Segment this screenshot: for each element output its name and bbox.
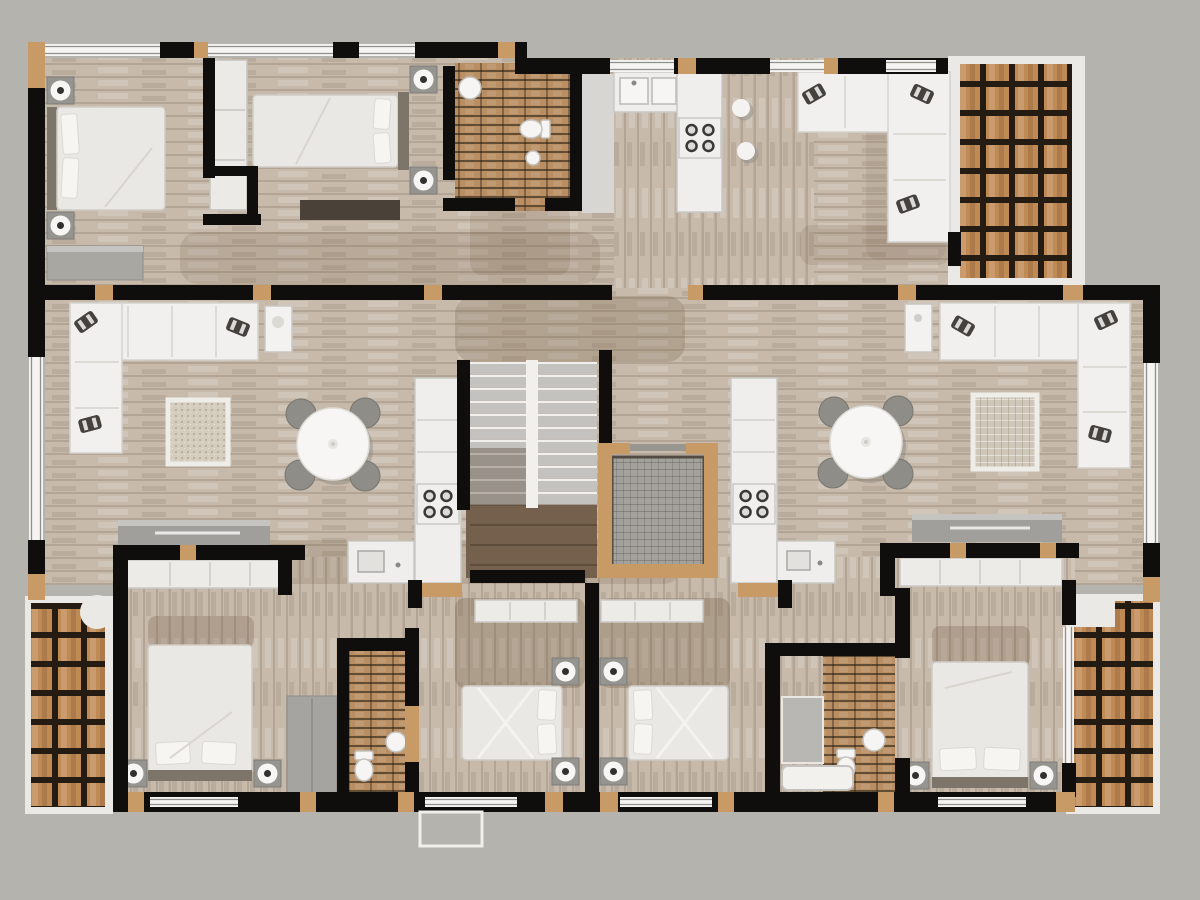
- wood-post: [300, 792, 316, 812]
- floor-shading: [148, 616, 254, 648]
- nightstand-lamp: [47, 212, 74, 239]
- wood-post: [718, 792, 734, 812]
- wall: [1143, 543, 1160, 577]
- shower: [782, 697, 823, 763]
- console-table: [905, 304, 932, 352]
- wall: [457, 360, 470, 510]
- wall: [113, 545, 305, 560]
- wardrobe: [601, 600, 703, 622]
- faucet: [632, 81, 637, 86]
- cooktop: [417, 484, 459, 524]
- faucet: [818, 561, 823, 566]
- bathroom-floor: [342, 650, 408, 792]
- elevator-cab: [612, 457, 704, 567]
- window: [1144, 363, 1158, 543]
- wall: [443, 66, 455, 180]
- bed-pillow: [633, 690, 653, 721]
- window: [886, 60, 936, 72]
- wall: [203, 58, 215, 178]
- door-threshold: [422, 583, 462, 597]
- wardrobe: [123, 560, 286, 588]
- elevator-door: [630, 444, 686, 451]
- washbasin: [863, 729, 885, 751]
- wall: [28, 88, 45, 357]
- wood-post: [180, 545, 196, 560]
- wood-post: [600, 792, 618, 812]
- dresser-top: [47, 246, 143, 252]
- wall: [443, 198, 515, 211]
- nightstand-lamp: [254, 760, 281, 787]
- stair-landing: [466, 500, 597, 578]
- wall: [408, 580, 422, 608]
- wall: [765, 643, 780, 795]
- nightstand-lamp: [552, 658, 579, 685]
- wood-post: [128, 792, 144, 812]
- nightstand-lamp: [47, 77, 74, 104]
- wall: [45, 285, 612, 300]
- bed-pillow: [61, 113, 80, 154]
- wood-post: [950, 543, 966, 558]
- desk: [300, 200, 400, 220]
- window: [359, 44, 415, 56]
- floor-shading: [932, 626, 1030, 666]
- wall: [113, 545, 128, 803]
- window: [425, 797, 517, 807]
- nightstand-lamp: [600, 658, 627, 685]
- wall: [570, 58, 582, 211]
- nightstand-lamp: [410, 66, 437, 93]
- rug: [168, 400, 228, 464]
- dining-set: [285, 398, 380, 491]
- wall: [948, 232, 961, 266]
- wood-post: [678, 58, 696, 74]
- wall: [880, 543, 895, 596]
- wood-post: [898, 285, 916, 300]
- staircase-shadow: [470, 448, 526, 506]
- kitchen-sink: [787, 551, 810, 570]
- kitchen-counter: [731, 378, 777, 583]
- entry-corridor-floor: [582, 74, 614, 213]
- wall: [515, 58, 610, 74]
- rug: [973, 395, 1037, 469]
- bed-headboard: [47, 107, 57, 210]
- elevator-frame: [598, 443, 612, 578]
- nightstand-lamp: [600, 758, 627, 785]
- dining-set: [818, 396, 913, 489]
- window: [610, 60, 674, 72]
- window: [208, 44, 333, 56]
- wall: [778, 580, 792, 608]
- wood-post: [1063, 285, 1083, 300]
- elevator-frame: [686, 443, 718, 454]
- window: [620, 797, 712, 807]
- bed-headboard: [932, 777, 1028, 788]
- window: [150, 797, 238, 807]
- kitchen-sink: [358, 551, 384, 572]
- wall: [333, 42, 359, 58]
- door-threshold: [738, 583, 778, 597]
- wall: [1062, 580, 1076, 625]
- tv-sideboard-top: [912, 514, 1062, 520]
- bar-stool: [732, 99, 750, 117]
- cooktop: [733, 484, 775, 524]
- wood-post: [688, 285, 703, 300]
- cooktop: [679, 118, 721, 158]
- balcony-trellis-notch: [1073, 601, 1115, 627]
- window: [45, 44, 160, 56]
- window: [29, 357, 43, 540]
- balcony-corner-column: [80, 595, 114, 629]
- wall: [278, 545, 292, 595]
- nightstand-lamp: [552, 758, 579, 785]
- bed-pillow: [939, 747, 976, 771]
- balcony-trellis: [1073, 601, 1153, 807]
- wall: [113, 792, 1075, 812]
- bed-pillow: [155, 741, 190, 765]
- wall: [203, 214, 261, 225]
- wall: [936, 58, 948, 74]
- bed-pillow: [983, 747, 1020, 771]
- nightstand-lamp: [410, 167, 437, 194]
- window: [938, 797, 1026, 807]
- toilet: [355, 751, 373, 781]
- elevator-frame: [598, 443, 630, 454]
- wall: [585, 583, 599, 795]
- bed-pillow: [537, 724, 557, 755]
- floor-shading: [470, 205, 570, 275]
- bed-pillow: [373, 132, 391, 163]
- kitchen-drawer: [652, 78, 676, 104]
- wood-post: [545, 792, 563, 812]
- bed-pillow: [537, 690, 557, 721]
- bed-pillow: [61, 158, 79, 199]
- wood-post: [878, 792, 894, 812]
- wall: [895, 588, 910, 658]
- washbasin: [386, 732, 406, 752]
- console-detail: [914, 314, 922, 322]
- wood-post: [194, 42, 208, 58]
- bed-headboard: [398, 92, 409, 170]
- window: [1063, 627, 1074, 763]
- bed-pillow: [201, 741, 236, 765]
- washbasin: [459, 77, 481, 99]
- nightstand-lamp: [1030, 762, 1057, 789]
- tv-sideboard-top: [118, 520, 270, 526]
- bed-headboard: [148, 770, 252, 781]
- kitchen-counter: [415, 378, 461, 583]
- wardrobe: [210, 60, 247, 210]
- console-table: [265, 306, 292, 352]
- wall: [28, 540, 45, 574]
- floor-plan-svg: [0, 0, 1200, 900]
- wood-post: [498, 42, 515, 58]
- bathroom-door: [405, 706, 419, 762]
- staircase-stringer: [526, 360, 538, 508]
- wood-post: [28, 42, 45, 88]
- wood-post: [253, 285, 271, 300]
- wood-post: [1040, 543, 1056, 558]
- wood-post: [424, 285, 442, 300]
- balcony-trellis: [31, 603, 105, 807]
- bathtub: [782, 766, 853, 790]
- wall: [1143, 285, 1160, 363]
- wall: [337, 643, 349, 795]
- wood-post: [824, 58, 838, 74]
- console-detail: [272, 316, 284, 328]
- bed-pillow: [633, 724, 653, 755]
- washbasin: [526, 151, 540, 165]
- balcony-trellis: [960, 64, 1072, 278]
- wall: [337, 638, 417, 651]
- wall: [470, 570, 585, 583]
- staircase-flight: [538, 362, 597, 505]
- elevator-frame: [598, 564, 718, 578]
- wood-post: [1143, 577, 1160, 602]
- window: [770, 60, 828, 72]
- bar-stool: [737, 142, 755, 160]
- wall: [599, 350, 612, 445]
- wood-post: [398, 792, 414, 812]
- toilet: [520, 120, 550, 138]
- faucet: [396, 563, 401, 568]
- floor-plan-image: [0, 0, 1200, 900]
- wood-post: [95, 285, 113, 300]
- wall: [1062, 763, 1076, 797]
- wood-post: [28, 574, 45, 600]
- elevator-frame: [704, 443, 718, 578]
- wall: [765, 643, 910, 656]
- wood-post: [1056, 792, 1075, 812]
- wardrobe: [900, 558, 1062, 586]
- wardrobe: [475, 600, 577, 622]
- bed-pillow: [373, 98, 391, 129]
- floor-shading: [455, 296, 685, 362]
